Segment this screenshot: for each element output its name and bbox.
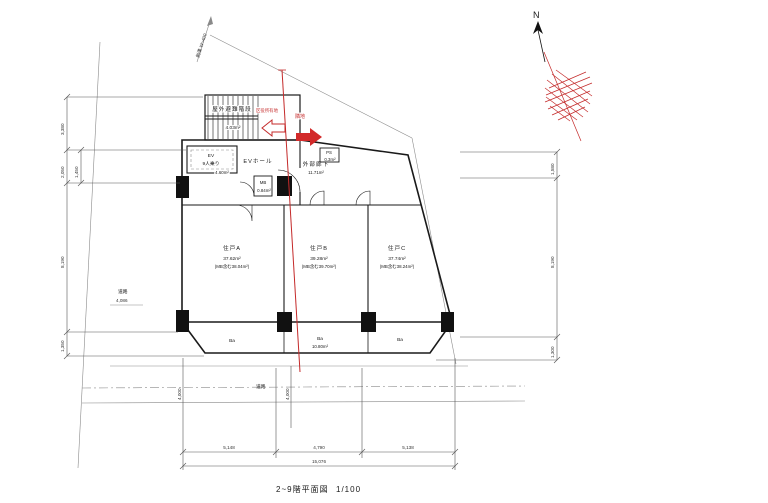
unit-c-area-note: (MB含む38.24m²): [380, 263, 415, 270]
unit-a-area: 37.62m²: [223, 256, 241, 262]
dimensions-right: 1,580 8,190 1,300: [436, 149, 560, 363]
floor-plan-canvas: 側溝 W=400 道路 4,086 道路 屋外避難階段 4.03m²: [0, 0, 768, 503]
door-arcs: [236, 170, 370, 221]
dim-left-4: 1,350: [60, 340, 65, 352]
balcony-b-area: 10.80m²: [312, 344, 329, 349]
unit-a: 住戸A 37.62m² (MB含む38.04m²): [215, 244, 250, 270]
drawing-title: 2~9階平面図: [276, 484, 329, 494]
unit-a-name: 住戸A: [223, 244, 241, 252]
road-lines: [82, 366, 525, 403]
mb-label: MB: [260, 180, 267, 185]
mb-closet: MB 0.84m²: [254, 176, 272, 196]
mb-area: 0.84m²: [257, 188, 271, 193]
dim-seg-3: 5,138: [402, 445, 414, 450]
dim-seg-1: 5,148: [223, 445, 235, 450]
red-hatch-mark: [544, 52, 592, 141]
columns: [176, 176, 454, 332]
north-arrow: N: [533, 10, 545, 62]
stair-label: 屋外避難階段: [212, 105, 252, 113]
elevator-shaft: EV 9人乗り 4.60m²: [187, 146, 237, 175]
dim-left-2: 2,050: [60, 166, 65, 178]
road-bottom-width-left: 4,000: [177, 388, 182, 400]
boundary-note-label: 側溝 W=400: [194, 32, 209, 59]
ps-shaft: PS 0.3m²: [320, 148, 339, 162]
dim-left-1: 3,380: [60, 123, 65, 135]
ps-area: 0.3m²: [324, 157, 336, 162]
balcony-c-label: Ba: [397, 337, 403, 343]
stair-treads: [205, 96, 258, 139]
unit-c-area: 37.74m²: [388, 256, 406, 262]
dimensions-bottom: 4,000 4,000 5,148 4,790 5,138 15,076: [177, 358, 458, 470]
north-label: N: [533, 10, 540, 20]
road-bottom-width-right: 4,000: [285, 388, 290, 400]
arrow-left-icon: [262, 120, 285, 136]
drawing-scale: 1/100: [336, 485, 361, 494]
balcony-b-label: Ba: [317, 336, 323, 342]
unit-a-area-note: (MB含む38.04m²): [215, 263, 250, 270]
unit-c: 住戸C 37.74m² (MB含む38.24m²): [380, 244, 415, 270]
ev-hall-label: EVホール: [243, 158, 272, 165]
elevator-area: 4.60m²: [215, 170, 229, 175]
unit-c-name: 住戸C: [388, 244, 406, 252]
dim-right-2: 8,190: [550, 256, 555, 268]
elevator-label: EV: [208, 153, 215, 159]
ps-label: PS: [326, 150, 332, 155]
corridor-area: 11.71m²: [308, 170, 324, 175]
balconies: Ba Ba 10.80m² Ba: [229, 336, 403, 349]
left-site-label: 区役所有地: [256, 107, 279, 114]
boundary-arrow: 側溝 W=400: [194, 16, 213, 62]
road-bottom-label: 道路: [256, 383, 266, 390]
dim-right-3: 1,300: [550, 346, 555, 358]
dim-seg-2: 4,790: [313, 445, 325, 450]
dim-total: 15,076: [312, 459, 326, 464]
floor-plan-drawing: 側溝 W=400 道路 4,086 道路 屋外避難階段 4.03m²: [0, 0, 768, 503]
dim-right-1: 1,580: [550, 163, 555, 175]
balcony-a-label: Ba: [229, 338, 235, 344]
road-left-label: 道路: [118, 288, 128, 295]
unit-b-area-note: (MB含む39.70m²): [302, 263, 337, 270]
road-left-width: 4,086: [116, 298, 128, 303]
right-site-label: 隣地: [295, 113, 305, 120]
drawing-title-block: 2~9階平面図 1/100: [276, 484, 361, 494]
elevator-capacity: 9人乗り: [202, 160, 219, 167]
unit-b: 住戸B 39.28m² (MB含む39.70m²): [302, 244, 337, 270]
unit-b-name: 住戸B: [310, 244, 328, 252]
stair-area: 4.03m²: [226, 125, 241, 131]
dim-left-inner: 1,450: [74, 166, 79, 178]
dim-left-3: 8,190: [60, 256, 65, 268]
unit-b-area: 39.28m²: [310, 256, 328, 262]
